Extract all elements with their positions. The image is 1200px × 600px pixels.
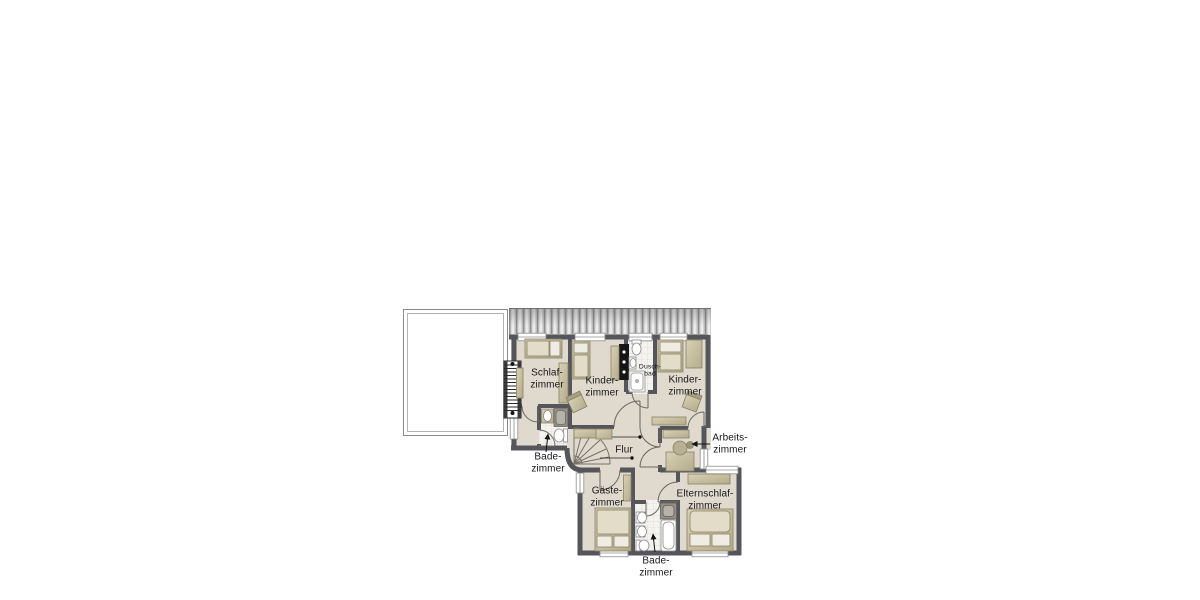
wardrobe-kinderzimmer-rechts [686, 340, 702, 368]
sink-badezimmer-unten-2 [636, 526, 647, 537]
shelf-arbeitszimmer [663, 430, 689, 438]
toilet-badezimmer-unten [636, 540, 649, 551]
cabinet-flur-2 [596, 429, 612, 439]
bed-gaestezimmer [595, 508, 631, 551]
room-label-badezimmer-oben: Bade- zimmer [531, 452, 564, 475]
room-label-kinderzimmer-rechts: Kinder- zimmer [668, 375, 701, 398]
room-label-schlafzimmer: Schlaf- zimmer [530, 368, 563, 391]
floorplan-page: Schlaf- zimmer Kinder- zimmer Dusch- bad… [0, 0, 1200, 600]
window-kinderzimmer-links [575, 333, 605, 341]
floorplan-drawing [0, 0, 1200, 600]
window-elternschlafzimmer-top [706, 466, 738, 474]
sideboard-kinderzimmer-rechts [652, 417, 686, 425]
toilet-duschbad [632, 340, 641, 355]
bed-kinderzimmer-rechts [658, 340, 683, 372]
toilet-badezimmer-oben [554, 429, 568, 442]
window-hall-left [510, 415, 518, 439]
bed-elternschlafzimmer [687, 509, 733, 551]
room-label-arbeitszimmer: Arbeits- zimmer [712, 433, 747, 456]
room-label-kinderzimmer-links: Kinder- zimmer [585, 376, 618, 399]
sideboard-elternschlafzimmer [688, 474, 730, 484]
wardrobe-gaestezimmer [624, 475, 632, 501]
bed-schlafzimmer [525, 339, 562, 358]
window-gaestezimmer-left [576, 473, 584, 493]
cabinet-flur-1 [574, 429, 598, 438]
bed-kinderzimmer-links [572, 341, 590, 379]
room-label-gaestezimmer: Gäste- zimmer [590, 486, 623, 509]
plant-arbeitszimmer [687, 442, 694, 449]
bathtub-badezimmer-unten [661, 520, 676, 551]
sink-badezimmer-unten-1 [636, 512, 647, 523]
chimney [619, 344, 629, 380]
room-label-duschbad: Dusch- bad [639, 364, 661, 379]
shower-badezimmer-unten [661, 503, 677, 519]
vanity-badezimmer-oben [542, 409, 554, 423]
room-label-elternschlafzimmer: Elternschlaf- zimmer [677, 489, 734, 512]
room-label-flur: Flur [615, 444, 633, 456]
shelf-schlafzimmer-left [517, 368, 524, 398]
sink-duschbad [629, 357, 636, 369]
shower-badezimmer-oben [554, 409, 568, 427]
room-label-badezimmer-unten: Bade- zimmer [639, 556, 672, 579]
